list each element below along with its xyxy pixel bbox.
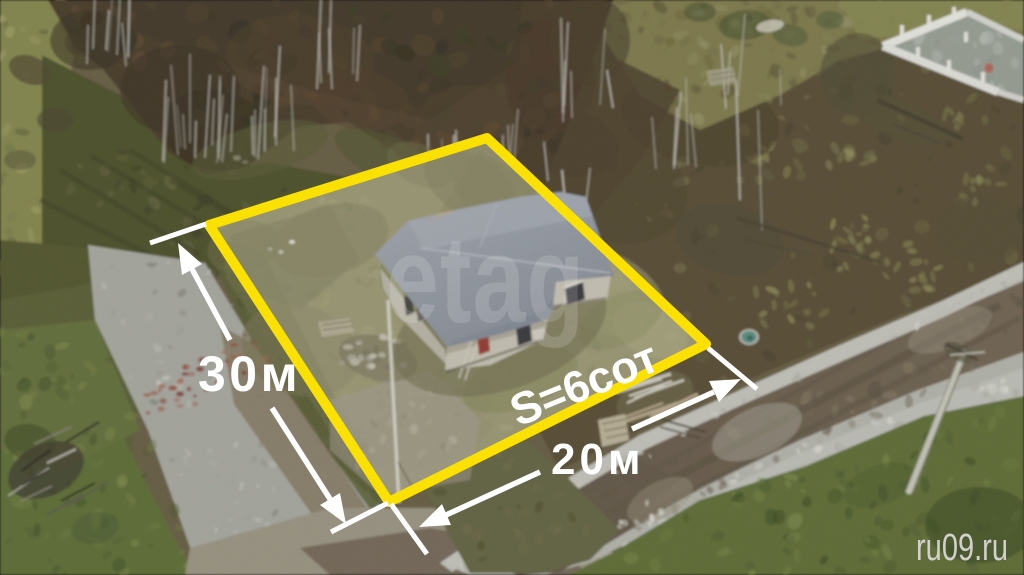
svg-text:ru09.ru: ru09.ru [916,527,1008,569]
svg-text:20м: 20м [551,435,645,484]
svg-text:etag: etag [386,211,585,349]
svg-text:30м: 30м [198,346,301,402]
